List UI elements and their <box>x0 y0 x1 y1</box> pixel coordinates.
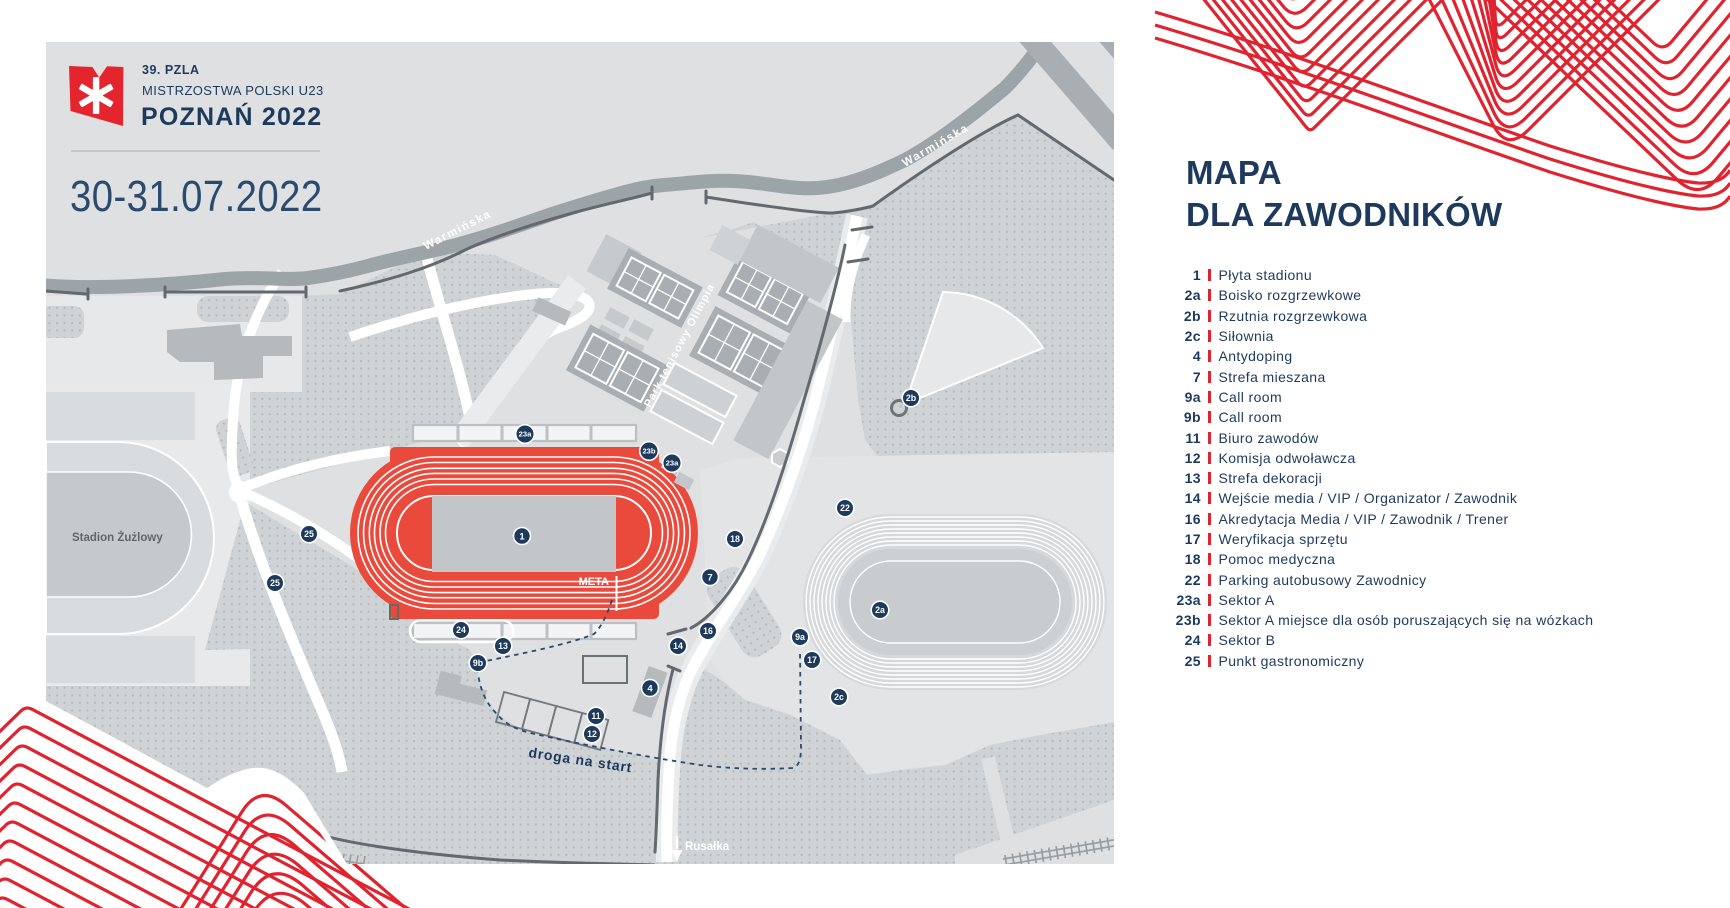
svg-text:23a: 23a <box>519 430 532 439</box>
svg-text:25: 25 <box>304 529 314 539</box>
svg-text:9a: 9a <box>795 632 805 642</box>
svg-text:16: 16 <box>703 626 713 636</box>
svg-text:22: 22 <box>840 503 850 513</box>
svg-text:23b: 23b <box>642 447 655 456</box>
svg-text:2c: 2c <box>834 692 844 702</box>
svg-text:14: 14 <box>673 641 683 651</box>
svg-text:2b: 2b <box>906 393 917 403</box>
svg-text:18: 18 <box>730 534 740 544</box>
svg-text:2a: 2a <box>875 605 885 615</box>
svg-text:11: 11 <box>591 711 600 721</box>
svg-text:Stadion Żużlowy: Stadion Żużlowy <box>72 531 163 544</box>
svg-text:12: 12 <box>587 729 597 739</box>
svg-text:7: 7 <box>707 572 712 583</box>
svg-text:META: META <box>579 576 609 588</box>
svg-text:13: 13 <box>498 641 508 651</box>
svg-text:23a: 23a <box>666 459 679 468</box>
svg-text:4: 4 <box>647 683 653 694</box>
svg-text:17: 17 <box>807 655 817 665</box>
svg-text:1: 1 <box>519 531 525 542</box>
svg-text:Rusałka: Rusałka <box>685 841 730 853</box>
svg-text:25: 25 <box>270 578 280 588</box>
